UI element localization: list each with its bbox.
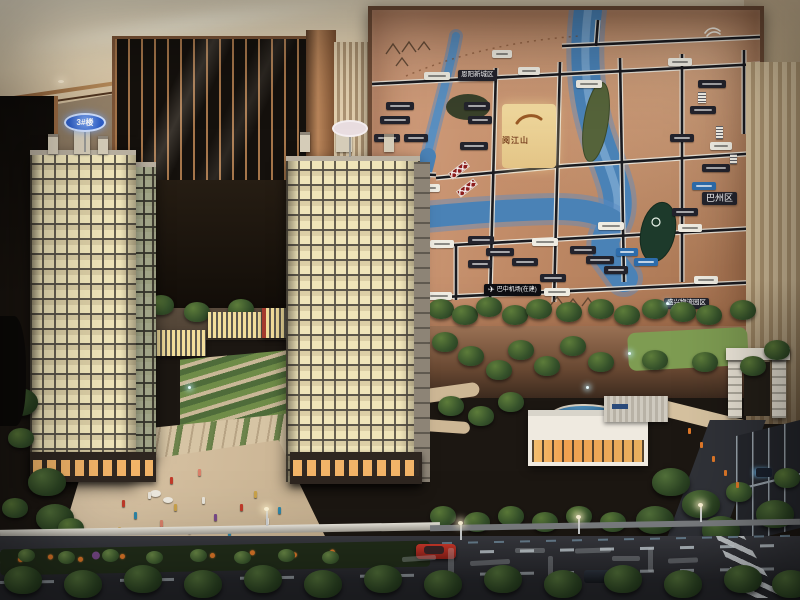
map-label-chip bbox=[464, 102, 490, 110]
clubhouse-sign bbox=[612, 404, 628, 409]
tower-crown bbox=[384, 134, 394, 152]
map-label-newtown: 恩阳新城区 bbox=[458, 70, 497, 81]
flower-bed bbox=[250, 550, 255, 555]
model-tower-center bbox=[286, 156, 420, 482]
model-tree bbox=[2, 498, 28, 518]
person-figure bbox=[736, 482, 739, 488]
model-tree bbox=[304, 570, 342, 598]
map-label-chip bbox=[424, 72, 450, 80]
model-tree bbox=[244, 565, 282, 593]
map-label-chip bbox=[670, 134, 694, 142]
map-label-chip bbox=[668, 58, 692, 66]
project-swoosh-logo-icon bbox=[514, 112, 544, 126]
map-label-chip bbox=[586, 256, 614, 264]
person-figure bbox=[198, 469, 201, 476]
person-figure bbox=[214, 514, 217, 521]
watermark-stroke bbox=[648, 548, 653, 572]
landmark-building-icon bbox=[716, 126, 723, 139]
model-tree bbox=[8, 428, 34, 448]
map-label-chip bbox=[518, 67, 540, 75]
map-label-chip bbox=[672, 208, 698, 216]
model-tree bbox=[560, 336, 586, 356]
tower-number-sign-unlit bbox=[332, 120, 368, 137]
map-label-chip bbox=[468, 236, 494, 244]
model-tree bbox=[190, 549, 207, 562]
landmark-building-icon bbox=[698, 92, 706, 103]
tower-crown bbox=[48, 134, 58, 154]
model-tree bbox=[604, 565, 642, 593]
model-tree bbox=[642, 299, 668, 319]
map-label-chip bbox=[544, 288, 570, 296]
tower-side-face bbox=[414, 162, 430, 482]
map-label-airport: ✈巴中机场(在建) bbox=[484, 284, 541, 296]
person-figure bbox=[148, 492, 151, 499]
map-label-chip bbox=[468, 116, 492, 124]
street-lamp bbox=[700, 506, 702, 522]
model-tree bbox=[468, 406, 494, 426]
model-tree bbox=[498, 392, 524, 412]
model-tree bbox=[322, 551, 339, 564]
model-tree bbox=[476, 297, 502, 317]
model-tree bbox=[438, 396, 464, 416]
model-tree bbox=[696, 305, 722, 325]
sign-pole bbox=[349, 135, 351, 157]
model-tree bbox=[432, 332, 458, 352]
model-lamp-glow bbox=[628, 352, 631, 355]
model-tree bbox=[278, 549, 295, 562]
model-tree bbox=[484, 565, 522, 593]
person-figure bbox=[122, 500, 125, 507]
model-tree bbox=[726, 482, 752, 502]
tower-crown bbox=[300, 132, 310, 152]
person-figure bbox=[240, 504, 243, 511]
model-tree bbox=[670, 302, 696, 322]
model-tree bbox=[544, 570, 582, 598]
model-tree bbox=[28, 468, 66, 496]
model-tree bbox=[740, 356, 766, 376]
model-tree bbox=[692, 352, 718, 372]
watermark-stroke bbox=[668, 557, 698, 563]
clubhouse-annex bbox=[604, 396, 668, 422]
entry-gate-pillar bbox=[772, 352, 786, 418]
model-tree bbox=[664, 570, 702, 598]
location-map: 阅江山 恩阳新城区 巴州区 盛兴物流园区 ✈巴中机场(在建) bbox=[372, 10, 760, 332]
map-label-chip bbox=[576, 80, 602, 88]
map-label-chip bbox=[570, 246, 596, 254]
map-label-chip bbox=[702, 164, 730, 172]
map-label-chip bbox=[492, 50, 512, 58]
map-label-chip bbox=[698, 80, 726, 88]
sales-center-photo: 阅江山 恩阳新城区 巴州区 盛兴物流园区 ✈巴中机场(在建) bbox=[0, 0, 800, 600]
watermark-stroke bbox=[515, 548, 545, 553]
model-tree bbox=[636, 506, 674, 534]
street-lamp bbox=[266, 510, 268, 526]
person-figure bbox=[174, 504, 177, 511]
model-tree bbox=[614, 305, 640, 325]
model-tree bbox=[58, 551, 75, 564]
map-label-chip bbox=[604, 266, 628, 274]
downlight bbox=[58, 80, 64, 83]
map-label-chip bbox=[386, 102, 414, 110]
model-tree bbox=[4, 566, 42, 594]
map-label-chip bbox=[460, 142, 488, 150]
person-figure bbox=[254, 491, 257, 498]
plaza-table bbox=[163, 497, 173, 503]
model-tree bbox=[102, 549, 119, 562]
model-tree bbox=[724, 565, 762, 593]
map-label-chip bbox=[710, 142, 732, 150]
tower-number-sign: 3#楼 bbox=[64, 113, 106, 132]
model-building bbox=[152, 330, 206, 356]
person-figure bbox=[202, 497, 205, 504]
model-tree bbox=[184, 570, 222, 598]
model-tree bbox=[18, 549, 35, 562]
model-tree bbox=[588, 299, 614, 319]
model-tree bbox=[124, 565, 162, 593]
flower-bed bbox=[210, 553, 215, 558]
model-tree bbox=[234, 551, 251, 564]
model-tree bbox=[534, 356, 560, 376]
model-tree bbox=[508, 340, 534, 360]
person-figure bbox=[724, 470, 727, 476]
plaza-table bbox=[150, 490, 161, 497]
retail-podium bbox=[290, 452, 422, 484]
model-tree bbox=[730, 300, 756, 320]
model-tree bbox=[146, 551, 163, 564]
map-label-chip bbox=[694, 276, 718, 284]
flower-bed bbox=[48, 554, 53, 559]
map-label-chip bbox=[468, 260, 492, 268]
map-label-chip bbox=[598, 222, 624, 230]
map-label-chip bbox=[512, 258, 538, 266]
model-tree bbox=[184, 302, 210, 322]
model-tower-left bbox=[30, 150, 136, 482]
map-label-chip bbox=[532, 238, 558, 246]
project-plot: 阅江山 bbox=[502, 104, 556, 168]
model-lamp-glow bbox=[188, 386, 191, 389]
model-tree bbox=[424, 570, 462, 598]
person-figure bbox=[134, 512, 137, 519]
model-tree bbox=[428, 299, 454, 319]
purple-shrub bbox=[92, 551, 100, 559]
model-tree bbox=[364, 565, 402, 593]
map-label-chip bbox=[404, 134, 428, 142]
model-tree bbox=[64, 570, 102, 598]
model-lamp-glow bbox=[586, 386, 589, 389]
flower-bed bbox=[120, 554, 125, 559]
airport-text: 巴中机场(在建) bbox=[497, 287, 537, 293]
street-lamp bbox=[460, 524, 462, 540]
project-name-label: 阅江山 bbox=[502, 135, 529, 146]
sign-pole bbox=[84, 130, 86, 152]
map-label-chip bbox=[540, 274, 566, 282]
watermark-stroke bbox=[612, 556, 640, 561]
model-tree bbox=[502, 305, 528, 325]
model-tree bbox=[526, 299, 552, 319]
model-tree bbox=[774, 468, 800, 488]
map-label-chip bbox=[486, 248, 514, 256]
model-tree bbox=[652, 468, 690, 496]
model-lamp-glow bbox=[666, 302, 669, 305]
model-tree bbox=[764, 340, 790, 360]
map-label-chip bbox=[678, 224, 702, 232]
model-car-parked bbox=[756, 468, 772, 477]
person-figure bbox=[170, 477, 173, 484]
landmark-building-icon bbox=[730, 154, 737, 164]
flower-bed bbox=[78, 557, 83, 562]
model-tree bbox=[588, 352, 614, 372]
map-emblem-icon bbox=[702, 24, 724, 40]
airplane-icon: ✈ bbox=[488, 286, 495, 294]
model-tree bbox=[642, 350, 668, 370]
map-label-chip bbox=[380, 116, 410, 124]
person-figure bbox=[700, 442, 703, 448]
map-label-district: 巴州区 bbox=[702, 192, 737, 205]
model-tree bbox=[458, 346, 484, 366]
person-figure bbox=[160, 520, 163, 527]
map-label-chip bbox=[616, 248, 638, 256]
model-tree bbox=[772, 570, 800, 598]
person-figure bbox=[712, 456, 715, 462]
model-tree bbox=[556, 302, 582, 322]
visitor-silhouette bbox=[0, 316, 26, 426]
map-label-chip bbox=[430, 240, 454, 248]
map-label-chip bbox=[690, 106, 716, 114]
model-tree bbox=[486, 360, 512, 380]
map-label-chip bbox=[692, 182, 716, 190]
person-figure bbox=[278, 507, 281, 514]
tower-crown bbox=[98, 136, 108, 154]
model-tree bbox=[452, 305, 478, 325]
person-figure bbox=[688, 428, 691, 434]
street-lamp bbox=[578, 518, 580, 534]
map-label-chip bbox=[634, 258, 658, 266]
